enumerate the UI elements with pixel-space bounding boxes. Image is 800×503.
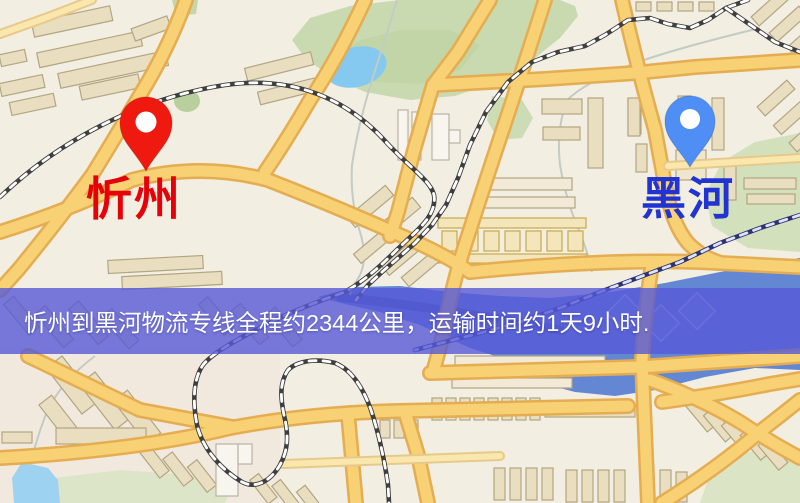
route-info-text: 忻州到黑河物流专线全程约2344公里，运输时间约1天9小时. bbox=[24, 304, 649, 338]
route-info-banner: 忻州到黑河物流专线全程约2344公里，运输时间约1天9小时. bbox=[0, 288, 800, 354]
map-canvas bbox=[0, 0, 800, 503]
destination-city-label: 黑河 bbox=[641, 176, 735, 221]
origin-city-label: 忻州 bbox=[86, 176, 182, 222]
map-screenshot: 忻州 黑河 忻州到黑河物流专线全程约2344公里，运输时间约1天9小时. bbox=[0, 0, 800, 503]
